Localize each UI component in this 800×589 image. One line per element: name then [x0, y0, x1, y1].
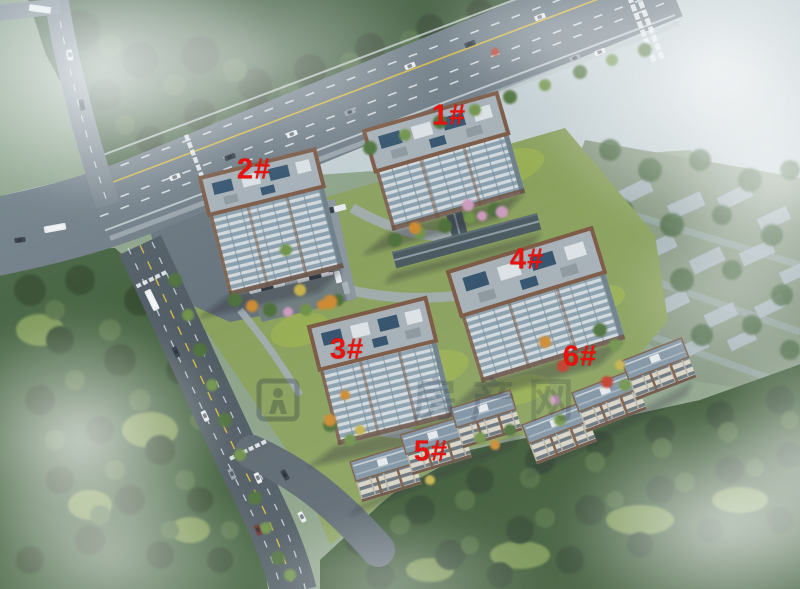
scene-illustration — [0, 0, 800, 589]
building-label-2: 2# — [237, 156, 271, 185]
building-label-3: 3# — [330, 336, 364, 365]
building-label-1: 1# — [432, 102, 466, 131]
building-label-5: 5# — [414, 438, 448, 467]
aerial-site-rendering: 房产网 1# 2# 3# 4# 5# 6# — [0, 0, 800, 589]
building-label-4: 4# — [510, 246, 544, 275]
building-label-6: 6# — [563, 343, 597, 372]
